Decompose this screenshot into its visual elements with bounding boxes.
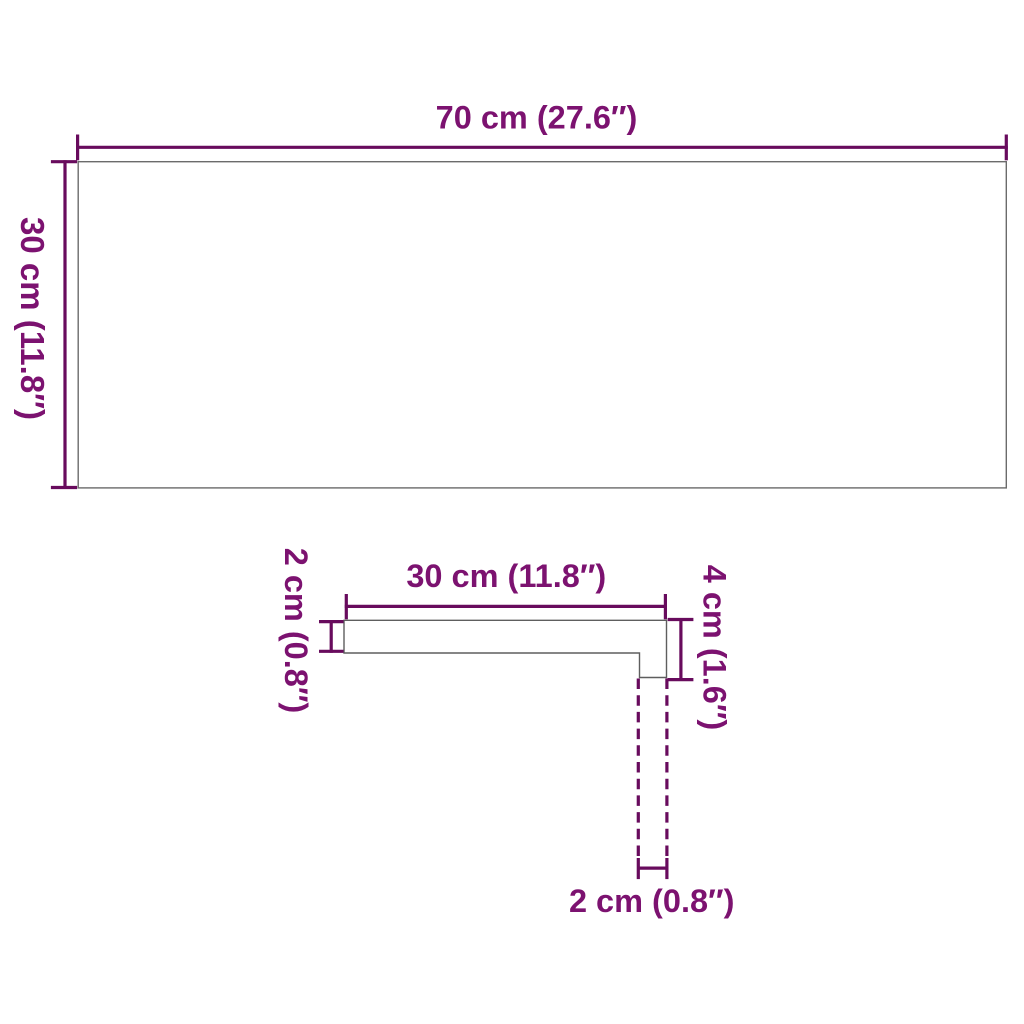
svg-text:2 cm (0.8″): 2 cm (0.8″) bbox=[278, 548, 314, 714]
svg-text:4 cm (1.6″): 4 cm (1.6″) bbox=[697, 565, 733, 731]
svg-text:30 cm (11.8″): 30 cm (11.8″) bbox=[14, 217, 51, 420]
svg-text:70 cm (27.6″): 70 cm (27.6″) bbox=[436, 100, 638, 136]
svg-text:30 cm (11.8″): 30 cm (11.8″) bbox=[406, 558, 606, 594]
svg-text:2 cm (0.8″): 2 cm (0.8″) bbox=[569, 883, 735, 919]
